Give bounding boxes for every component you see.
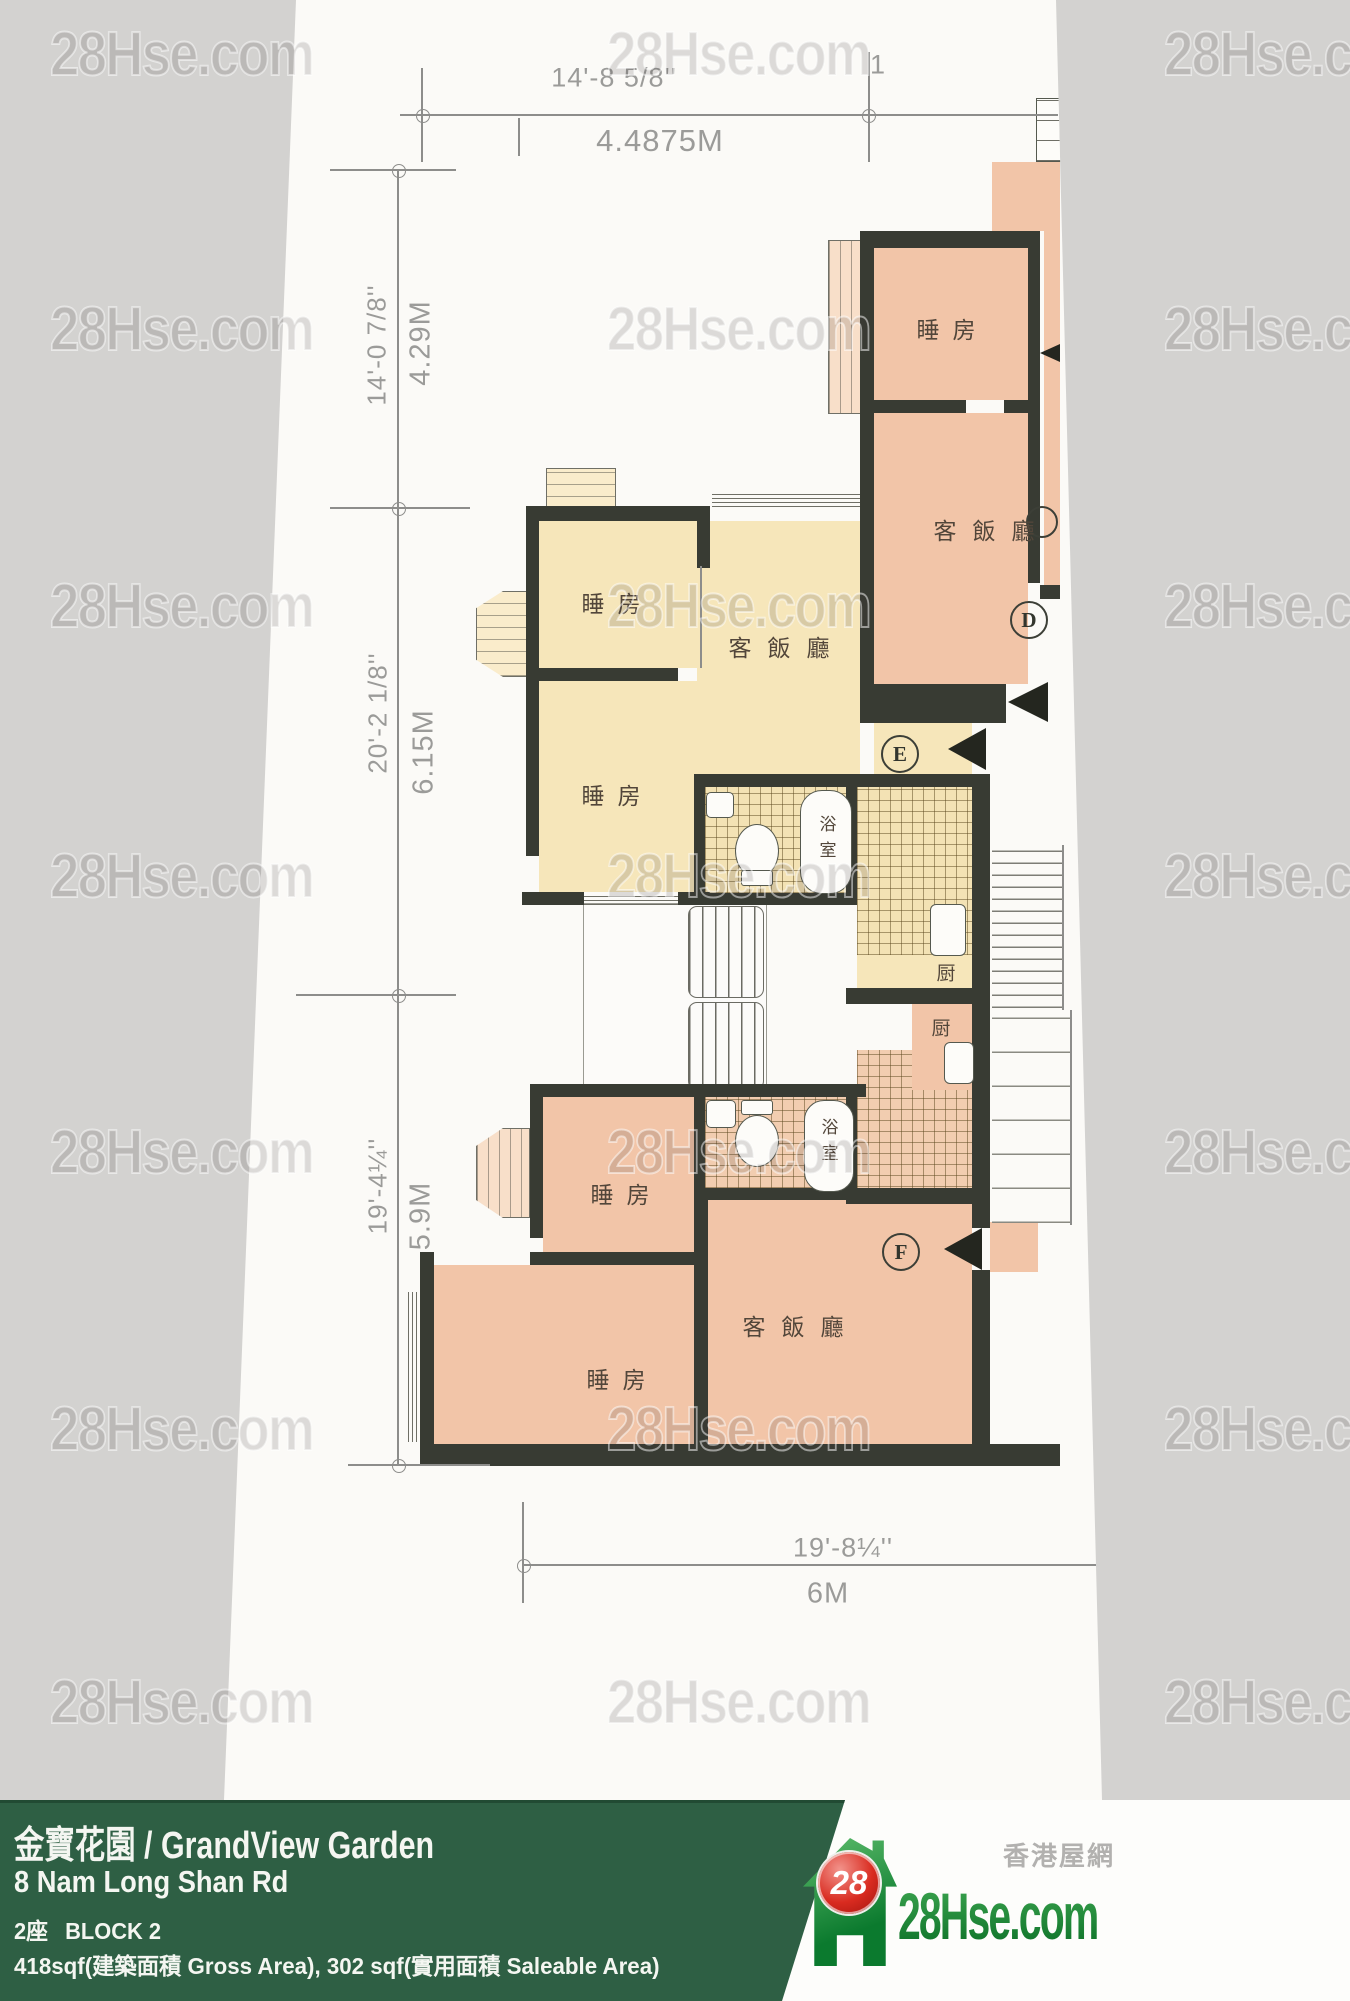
- watermark: 28Hse.com: [1164, 1667, 1350, 1738]
- dim-left3-meters: 5.9M: [405, 1182, 438, 1250]
- watermark: 28Hse.com: [607, 841, 870, 912]
- unit-circle-d: D: [1010, 601, 1048, 639]
- dim-left1-meters: 4.29M: [405, 300, 438, 386]
- dim-bottom-meters: 6M: [807, 1578, 849, 1611]
- watermark: 28Hse.com: [50, 571, 313, 642]
- block-en: BLOCK 2: [65, 1918, 161, 1944]
- footer-bar: 金寶花園 / GrandView Garden 8 Nam Long Shan …: [0, 1800, 1350, 2001]
- dim-tick-bottom-right: [1166, 1559, 1180, 1573]
- watermark: 28Hse.com: [50, 294, 313, 365]
- watermark: 28Hse.com: [50, 1667, 313, 1738]
- logo-28-badge: 28: [818, 1852, 880, 1914]
- watermark: 28Hse.com: [607, 1117, 870, 1188]
- watermark: 28Hse.com: [607, 19, 870, 90]
- watermark: 28Hse.com: [1164, 19, 1350, 90]
- estate-address: 8 Nam Long Shan Rd: [14, 1864, 288, 1900]
- logo-site-name: 28Hse.com: [898, 1878, 1097, 1954]
- dim-top-meters: 4.4875M: [596, 123, 724, 159]
- room-label-kitchen-e: 厨: [936, 959, 955, 986]
- dim-bottom-feet: 19'-8¼'': [793, 1533, 893, 1564]
- dim-left2-feet: 20'-2 1/8'': [363, 652, 394, 773]
- watermark: 28Hse.com: [1164, 841, 1350, 912]
- room-label-kitchen-f: 厨: [931, 1014, 950, 1041]
- room-label-living-d: 客飯廳: [918, 512, 1051, 546]
- dim-left3-feet: 19'-4¼'': [363, 1138, 394, 1235]
- watermark: 28Hse.com: [607, 294, 870, 365]
- room-label-bedroom-e2: 睡房: [569, 777, 654, 811]
- room-label-bedroom-d: 睡房: [904, 311, 989, 345]
- floorplan-scan: 睡房 客飯廳 D 睡房 客飯廳 睡房 浴室 厨 E 厨 浴室 睡房 客飯廳 睡房…: [0, 0, 1350, 2001]
- estate-area: 418sqf(建築面積 Gross Area), 302 sqf(實用面積 Sa…: [14, 1947, 660, 1981]
- watermark: 28Hse.com: [50, 1117, 313, 1188]
- estate-title: 金寶花園 / GrandView Garden: [14, 1814, 434, 1869]
- watermark: 28Hse.com: [50, 1394, 313, 1465]
- dim-top-right-partial: 1: [870, 50, 886, 81]
- estate-block: 2座BLOCK 2: [14, 1912, 161, 1946]
- unit-circle-f: F: [882, 1233, 920, 1271]
- watermark: 28Hse.com: [1164, 571, 1350, 642]
- watermark: 28Hse.com: [607, 1394, 870, 1465]
- watermark: 28Hse.com: [607, 571, 870, 642]
- watermark: 28Hse.com: [607, 1667, 870, 1738]
- room-label-living-f: 客飯廳: [727, 1308, 860, 1342]
- watermark: 28Hse.com: [50, 841, 313, 912]
- dim-guide-bottom-right: [1171, 1502, 1173, 1603]
- watermark: 28Hse.com: [1164, 1117, 1350, 1188]
- dim-left1-feet: 14'-0 7/8'': [362, 284, 393, 405]
- watermark: 28Hse.com: [1164, 294, 1350, 365]
- watermark: 28Hse.com: [50, 19, 313, 90]
- dim-left2-meters: 6.15M: [408, 709, 441, 795]
- watermark: 28Hse.com: [1164, 1394, 1350, 1465]
- room-label-bedroom-f2: 睡房: [574, 1361, 659, 1395]
- logo-tagline: 香港屋網: [1003, 1836, 1115, 1873]
- block-zh: 2座: [14, 1918, 48, 1944]
- unit-circle-e: E: [881, 735, 919, 773]
